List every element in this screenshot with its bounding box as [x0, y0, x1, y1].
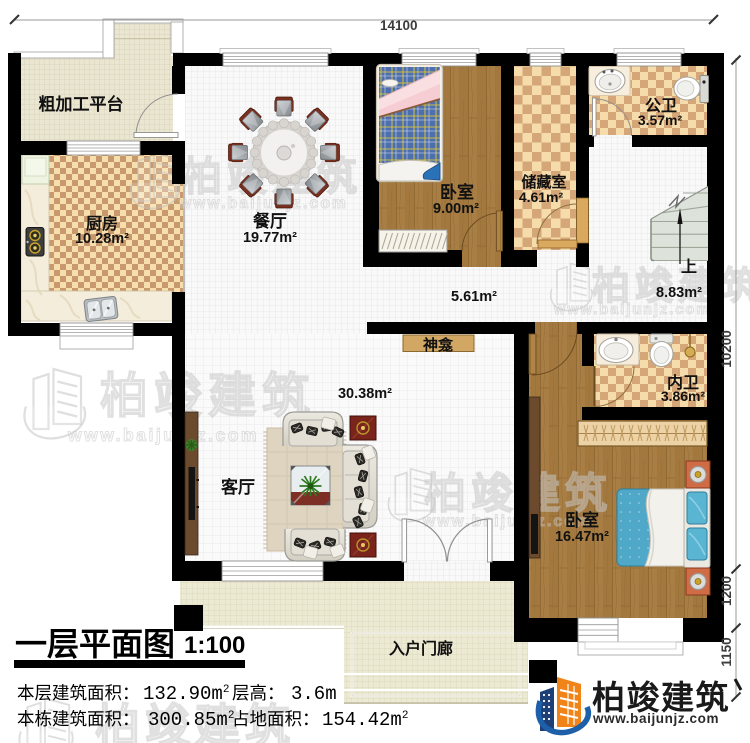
svg-text:客厅: 客厅 [220, 477, 255, 497]
svg-text:8.83m²: 8.83m² [656, 285, 702, 301]
svg-text:5.61m²: 5.61m² [451, 289, 497, 305]
svg-text:卧室: 卧室 [565, 510, 599, 530]
svg-text:餐厅: 餐厅 [253, 211, 287, 231]
svg-text:1150: 1150 [719, 637, 734, 666]
svg-text:30.38m²: 30.38m² [338, 386, 392, 402]
svg-text:粗加工平台: 粗加工平台 [39, 94, 124, 114]
svg-text:一层平面图: 一层平面图 [15, 626, 175, 662]
svg-text:www.baijunjz.com: www.baijunjz.com [592, 711, 719, 726]
svg-text:上: 上 [681, 258, 697, 276]
svg-text:3.57m²: 3.57m² [638, 112, 683, 128]
svg-text:层高：: 层高： [232, 683, 285, 703]
svg-text:入户门廊: 入户门廊 [389, 639, 453, 658]
svg-text:1200: 1200 [719, 576, 734, 606]
svg-text:卧室: 卧室 [440, 182, 474, 202]
svg-text:本层建筑面积：: 本层建筑面积： [17, 683, 140, 703]
svg-text:19.77m²: 19.77m² [243, 230, 297, 246]
svg-text:4.61m²: 4.61m² [519, 189, 564, 205]
svg-text:16.47m²: 16.47m² [555, 529, 609, 545]
svg-text:www.baijunjz.com: www.baijunjz.com [67, 425, 259, 445]
svg-text:9.00m²: 9.00m² [433, 201, 479, 217]
svg-text:3.86m²: 3.86m² [661, 388, 706, 404]
svg-text:神龛: 神龛 [423, 336, 454, 354]
svg-text:154.42m2: 154.42m2 [322, 709, 408, 731]
svg-text:3.6m: 3.6m [291, 683, 337, 705]
svg-text:1:100: 1:100 [184, 632, 245, 659]
svg-text:14100: 14100 [380, 18, 418, 33]
svg-text:10200: 10200 [719, 330, 734, 368]
svg-text:132.90m2: 132.90m2 [143, 683, 229, 705]
svg-text:www.baijunjz.com: www.baijunjz.com [178, 195, 348, 212]
svg-text:www.baijunjz.com: www.baijunjz.com [553, 302, 711, 318]
svg-text:10.28m²: 10.28m² [75, 231, 129, 247]
svg-text:300.85m2: 300.85m2 [148, 709, 234, 731]
svg-text:本栋建筑面积：: 本栋建筑面积： [17, 709, 140, 729]
svg-text:占地面积：: 占地面积： [232, 709, 320, 729]
svg-text:柏竣建筑: 柏竣建筑 [100, 370, 316, 423]
